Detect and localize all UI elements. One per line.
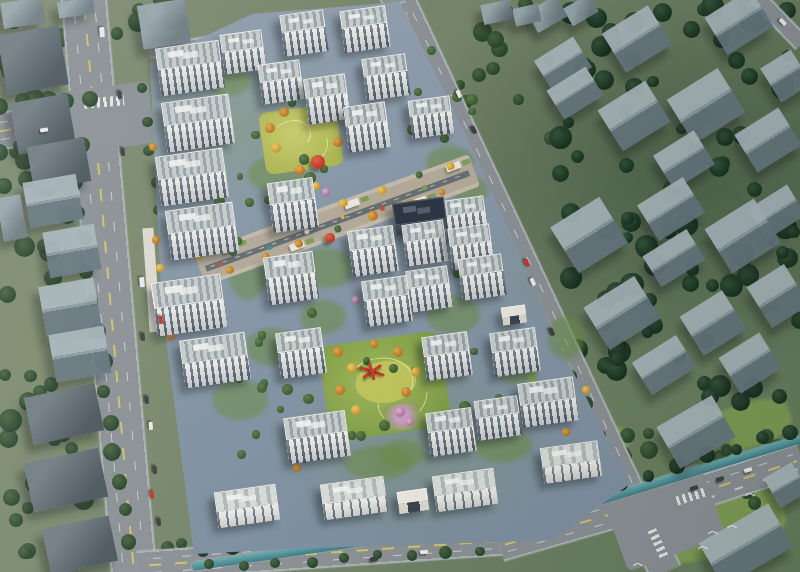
tree (466, 94, 477, 105)
tree (333, 347, 343, 357)
residential-tower (279, 9, 328, 57)
street-tree (376, 185, 388, 197)
residential-tower (457, 253, 506, 301)
tree (271, 143, 281, 153)
tree (322, 188, 330, 196)
residential-tower (405, 265, 452, 312)
green-patch (380, 440, 424, 468)
residential-tower (257, 59, 304, 104)
street-tree (366, 210, 379, 223)
bird (727, 524, 736, 529)
car (145, 396, 149, 404)
residential-slab (155, 148, 229, 207)
car (149, 422, 153, 430)
tree (347, 363, 357, 373)
tree (440, 134, 449, 143)
car (157, 518, 161, 526)
tree (406, 418, 414, 426)
tree (257, 382, 268, 393)
bird (708, 530, 717, 535)
residential-tower (401, 219, 448, 266)
residential-slab (179, 332, 251, 389)
residential-slab (283, 410, 351, 464)
tree (251, 131, 259, 139)
car (370, 557, 378, 561)
car (118, 91, 122, 99)
tree (295, 165, 305, 175)
car (153, 466, 157, 474)
umbrella (267, 245, 273, 251)
residential-tower (347, 225, 399, 277)
tree (335, 385, 345, 395)
residential-tower (489, 327, 541, 377)
entrance-gate (501, 304, 527, 325)
tree (582, 386, 590, 394)
tree (152, 236, 160, 244)
residential-slab (165, 202, 239, 261)
tree (333, 137, 343, 147)
tree (252, 430, 261, 439)
tree (395, 407, 405, 417)
residential-tower (263, 251, 319, 305)
tree (393, 347, 403, 357)
tree (279, 107, 289, 117)
street-tree (225, 265, 235, 275)
bird (633, 562, 642, 567)
residential-tower (343, 101, 391, 152)
residential-tower (408, 95, 455, 138)
tree (299, 154, 309, 164)
entrance-gate (397, 488, 430, 514)
street-tree (334, 225, 343, 234)
tree (351, 405, 361, 415)
bird (745, 492, 754, 497)
tree (307, 308, 316, 317)
umbrella (379, 206, 385, 212)
green-patch (548, 316, 584, 360)
residential-tower (425, 407, 477, 457)
residential-slab (151, 273, 228, 336)
residential-tower (267, 177, 320, 233)
tree (149, 143, 157, 151)
tree (401, 387, 411, 397)
car (159, 316, 163, 324)
car (121, 148, 125, 156)
residential-tower (339, 5, 390, 53)
street-tree (414, 170, 423, 179)
residential-tower (361, 275, 413, 327)
car (139, 277, 145, 288)
tree (411, 367, 421, 377)
residential-slab (517, 376, 579, 427)
residential-tower (473, 395, 522, 441)
tree (265, 123, 275, 133)
tree (293, 464, 301, 472)
tree (237, 173, 243, 179)
tree (468, 108, 475, 115)
car (150, 491, 154, 499)
green-roof (461, 158, 470, 165)
car (141, 333, 145, 341)
aerial-render-residential-masterplan (0, 0, 800, 572)
tree (255, 338, 263, 346)
residential-tower (421, 331, 473, 381)
tree (303, 394, 313, 404)
red-sphere-sculpture (325, 233, 335, 243)
car (99, 27, 105, 38)
red-sphere-sculpture (311, 155, 325, 169)
tree (245, 198, 253, 206)
car (420, 550, 428, 554)
residential-slab (155, 40, 225, 96)
residential-tower (361, 53, 410, 101)
tree (156, 264, 164, 272)
residential-slab (161, 94, 235, 153)
residential-tower (275, 327, 327, 379)
tree (427, 46, 436, 55)
green-roof (305, 238, 314, 245)
green-roof (360, 195, 369, 202)
bird (698, 545, 707, 550)
tree (352, 296, 360, 304)
tree (470, 348, 478, 356)
street-tree (438, 188, 446, 196)
tree (562, 428, 570, 436)
tree (370, 340, 378, 348)
